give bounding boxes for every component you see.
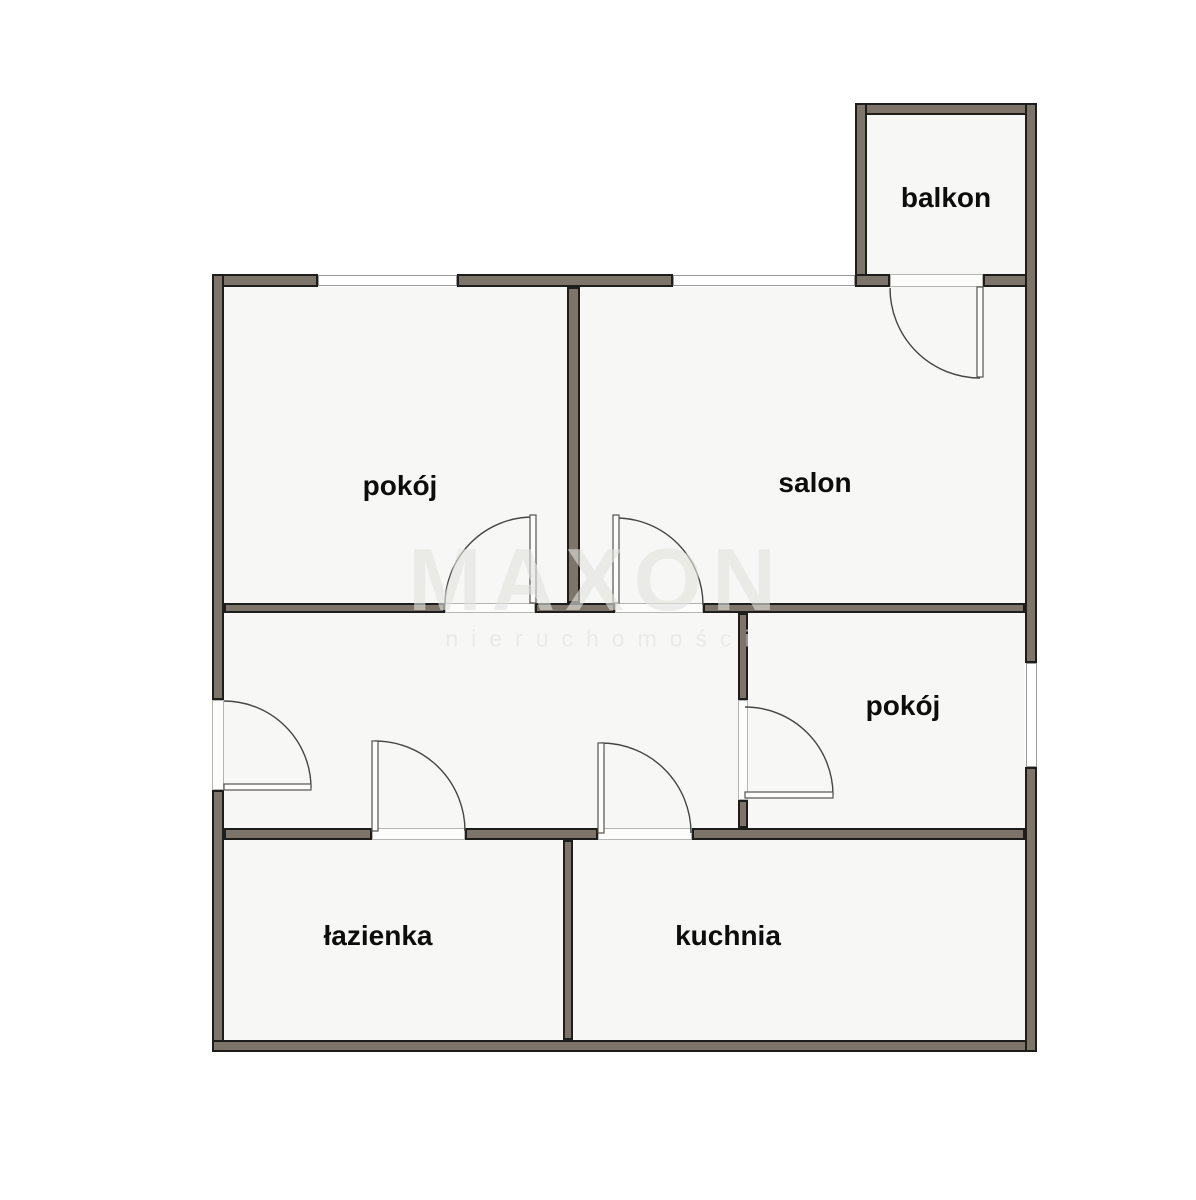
door-arc-kuchnia <box>601 743 691 833</box>
room-label-kuchnia: kuchnia <box>675 920 781 952</box>
door-leaf-kuchnia <box>598 743 604 833</box>
door-arc-entrance <box>224 701 311 788</box>
watermark-brand: MAXON <box>408 529 786 631</box>
door-arc-pokoj-right <box>745 707 833 795</box>
room-label-pokoj-right: pokój <box>866 690 941 722</box>
room-label-lazienka: łazienka <box>324 920 433 952</box>
door-leaf-pokoj-right <box>745 792 833 798</box>
door-leaf-lazienka <box>372 741 378 831</box>
door-arc-balcony <box>890 288 980 378</box>
room-label-pokoj-top: pokój <box>363 470 438 502</box>
door-arc-lazienka <box>375 741 465 831</box>
door-leaf-balcony <box>977 287 983 377</box>
room-label-balkon: balkon <box>901 182 991 214</box>
room-label-salon: salon <box>778 467 851 499</box>
floorplan-canvas: balkon pokój salon pokój łazienka kuchni… <box>0 0 1196 1200</box>
watermark-subtitle: nieruchomości <box>445 626 762 653</box>
door-leaf-entrance <box>224 784 311 790</box>
